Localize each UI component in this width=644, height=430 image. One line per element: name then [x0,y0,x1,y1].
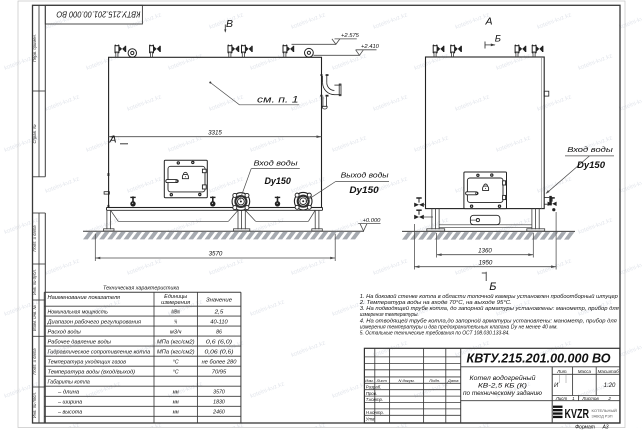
svg-text:Техническая характеристика: Техническая характеристика [103,286,179,292]
svg-text:В: В [226,18,233,30]
svg-text:м3/ч: м3/ч [170,329,182,335]
svg-text:измерения температуры.: измерения температуры. [360,312,419,318]
svg-text:МПа (кгс/см2): МПа (кгс/см2) [157,349,195,355]
svg-text:40-110: 40-110 [210,319,228,325]
svg-text:KVZR: KVZR [565,406,590,421]
svg-text:Б: Б [489,281,496,293]
svg-text:измерения: измерения [161,300,190,306]
svg-text:Подп.: Подп. [429,378,440,383]
svg-text:Номинальная мощность: Номинальная мощность [48,309,109,315]
svg-text:Т.контр.: Т.контр. [366,397,383,402]
svg-text:Лист: Лист [555,396,568,401]
svg-text:1360: 1360 [478,248,492,255]
svg-text:Пров.: Пров. [366,391,377,396]
svg-text:измерения температуры и два пр: измерения температуры и два предохраните… [360,324,558,330]
svg-text:2. Температура воды на входе: 2. Температура воды на входе 70°С, на вы… [359,300,512,306]
svg-text:Вход воды: Вход воды [254,159,298,168]
svg-text:Наименование показателя: Наименование показателя [48,295,121,301]
svg-text:86: 86 [216,329,222,335]
svg-text:Изм.: Изм. [365,378,374,383]
svg-text:– высота: – высота [57,409,82,415]
svg-text:Вход воды: Вход воды [567,145,613,154]
svg-text:2,5: 2,5 [213,309,223,315]
svg-text:+2.410: +2.410 [361,44,380,50]
svg-text:3315: 3315 [208,130,222,137]
svg-text:Dy150: Dy150 [349,185,379,195]
svg-text:70/95: 70/95 [212,369,227,375]
svg-text:Температура уходящих газов: Температура уходящих газов [48,359,127,365]
svg-text:Гидравлическое сопротивление к: Гидравлическое сопротивление котла [48,349,151,355]
svg-text:Габариты котла: Габариты котла [48,379,91,385]
svg-text:И: И [554,383,559,389]
svg-text:Рабочее давление воды: Рабочее давление воды [48,339,112,345]
svg-text:0,6 (6,0): 0,6 (6,0) [206,339,233,345]
svg-text:А: А [109,133,117,145]
svg-text:5. Остальные технические треб: 5. Остальные технические требования по О… [360,331,510,337]
svg-text:МПа (кгс/см2): МПа (кгс/см2) [157,339,195,345]
svg-text:Утв.: Утв. [366,416,376,421]
svg-text:Выход воды: Выход воды [341,170,389,179]
svg-text:Масса: Масса [578,369,592,374]
svg-text:Б: Б [495,34,501,45]
svg-text:– длина: – длина [57,389,80,395]
svg-text:N докум.: N докум. [399,378,415,383]
svg-text:А: А [485,16,493,28]
svg-text:см. п. 1: см. п. 1 [257,94,299,104]
svg-text:КВТУ.215.201.00.000 ВО: КВТУ.215.201.00.000 ВО [56,9,140,19]
svg-text:КВТУ.215.201.00.000 ВО: КВТУ.215.201.00.000 ВО [467,352,611,366]
svg-text:Дата: Дата [447,378,459,383]
svg-text:КВ-2,5 КБ (К): КВ-2,5 КБ (К) [478,384,527,390]
svg-text:4. На отводящей трубе котла,д: 4. На отводящей трубе котла,до запорной … [360,317,617,324]
svg-text:Листов: Листов [581,396,599,401]
svg-text:мм: мм [173,409,179,415]
svg-text:Лит.: Лит. [556,369,568,374]
svg-text:3570: 3570 [209,251,223,258]
svg-text:Значение: Значение [206,298,232,304]
svg-text:МВт: МВт [171,309,180,315]
svg-text:%: % [174,319,177,325]
svg-text:Формат: Формат [575,425,595,430]
svg-text:Справ. №: Справ. № [32,124,37,143]
svg-text:– ширина: – ширина [57,399,83,405]
svg-text:Н.контр.: Н.контр. [366,410,384,415]
svg-text:Перв. примен.: Перв. примен. [32,34,37,62]
svg-text:+0.000: +0.000 [363,218,382,224]
svg-text:2460: 2460 [212,409,225,415]
svg-text:мм: мм [173,399,179,405]
svg-text:Инв. № дубл.: Инв. № дубл. [32,269,37,295]
svg-text:Расход воды: Расход воды [48,329,82,335]
svg-text:Подп. и дата: Подп. и дата [32,225,37,252]
svg-text:1:20: 1:20 [604,383,616,389]
svg-text:2: 2 [607,396,611,401]
svg-text:3570: 3570 [213,389,225,395]
svg-text:1. На боковой стенке котла в: 1. На боковой стенке котла в области топ… [360,293,618,300]
svg-text:3. На подводящей трубе котла,: 3. На подводящей трубе котла, до запорно… [360,305,619,312]
svg-text:Диапазон рабочего регулировани: Диапазон рабочего регулирования [46,319,141,325]
svg-text:КОТЕЛЬНЫЙ: КОТЕЛЬНЫЙ [592,408,618,413]
svg-text:Подп. и дата: Подп. и дата [32,348,37,375]
svg-text:°С: °С [173,359,179,365]
svg-text:°С: °С [173,369,179,375]
svg-text:+2.575: +2.575 [341,33,360,39]
svg-text:Температура воды (вход/выход): Температура воды (вход/выход) [48,369,136,375]
svg-text:по техническому заданию: по техническому заданию [463,391,543,397]
svg-text:не более 280: не более 280 [202,359,237,365]
svg-text:1830: 1830 [213,399,225,405]
svg-text:Котел водогрейный: Котел водогрейный [470,375,537,382]
svg-text:А3: А3 [601,425,608,430]
svg-text:Инв. № подл.: Инв. № подл. [32,392,37,418]
svg-text:Dy150: Dy150 [577,160,606,170]
svg-text:Взам. инв. №: Взам. инв. № [32,305,37,331]
svg-text:Лист: Лист [376,378,388,383]
svg-text:1950: 1950 [479,260,493,267]
svg-text:ЗАВОД РЭП: ЗАВОД РЭП [592,413,613,418]
svg-text:0,06 (0,6): 0,06 (0,6) [205,349,234,355]
svg-text:Dy150: Dy150 [264,176,291,186]
svg-text:мм: мм [173,389,179,395]
svg-text:Масштаб: Масштаб [598,369,619,374]
svg-text:Разраб.: Разраб. [366,384,382,389]
